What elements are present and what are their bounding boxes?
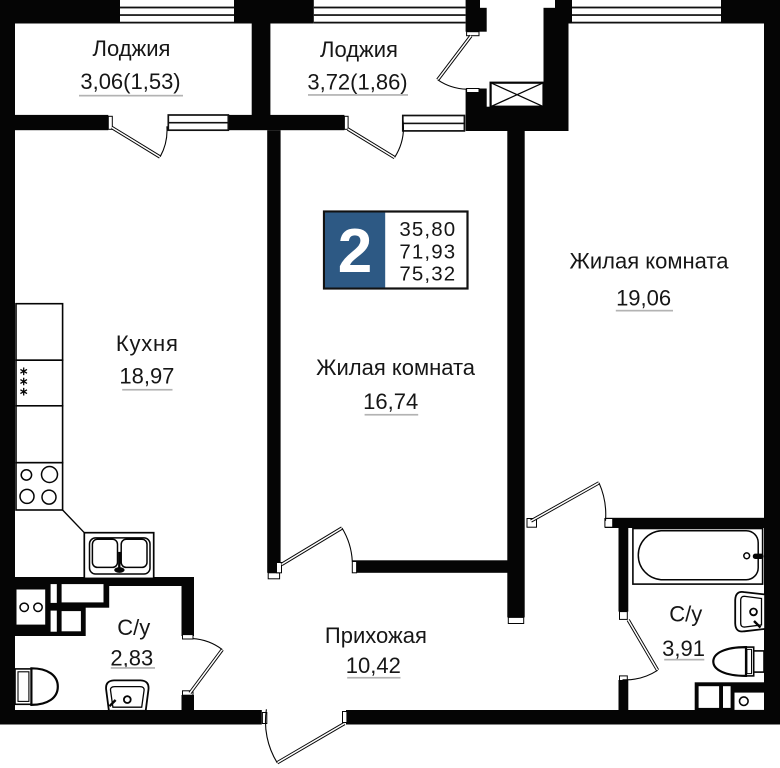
svg-text:16,74: 16,74 <box>363 389 418 414</box>
svg-text:10,42: 10,42 <box>346 653 401 678</box>
svg-text:Жилая комната: Жилая комната <box>570 249 730 274</box>
svg-text:Прихожая: Прихожая <box>325 623 427 648</box>
svg-text:75,32: 75,32 <box>399 263 456 286</box>
svg-text:19,06: 19,06 <box>616 286 671 311</box>
svg-text:3,06(1,53): 3,06(1,53) <box>80 69 180 94</box>
svg-text:Жилая комната: Жилая комната <box>316 355 476 380</box>
svg-text:3,91: 3,91 <box>662 636 705 661</box>
svg-text:18,97: 18,97 <box>119 364 174 389</box>
svg-text:Лоджия: Лоджия <box>93 36 171 61</box>
svg-text:3,72(1,86): 3,72(1,86) <box>307 69 407 94</box>
svg-text:35,80: 35,80 <box>399 218 456 241</box>
svg-text:Кухня: Кухня <box>116 331 179 356</box>
svg-text:71,93: 71,93 <box>399 240 456 263</box>
svg-text:2,83: 2,83 <box>110 646 153 671</box>
svg-text:С/у: С/у <box>669 602 702 627</box>
svg-text:Лоджия: Лоджия <box>320 37 398 62</box>
svg-text:2: 2 <box>338 217 372 286</box>
svg-text:С/у: С/у <box>117 615 150 640</box>
